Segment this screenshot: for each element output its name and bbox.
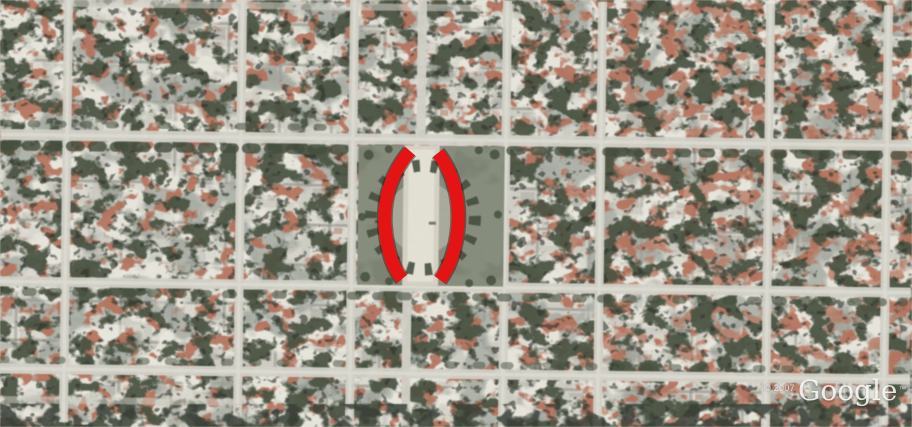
photo-grain xyxy=(0,0,912,427)
map-viewport[interactable]: © 2007 Google ™ xyxy=(0,0,912,427)
aerial-imagery xyxy=(0,0,912,427)
